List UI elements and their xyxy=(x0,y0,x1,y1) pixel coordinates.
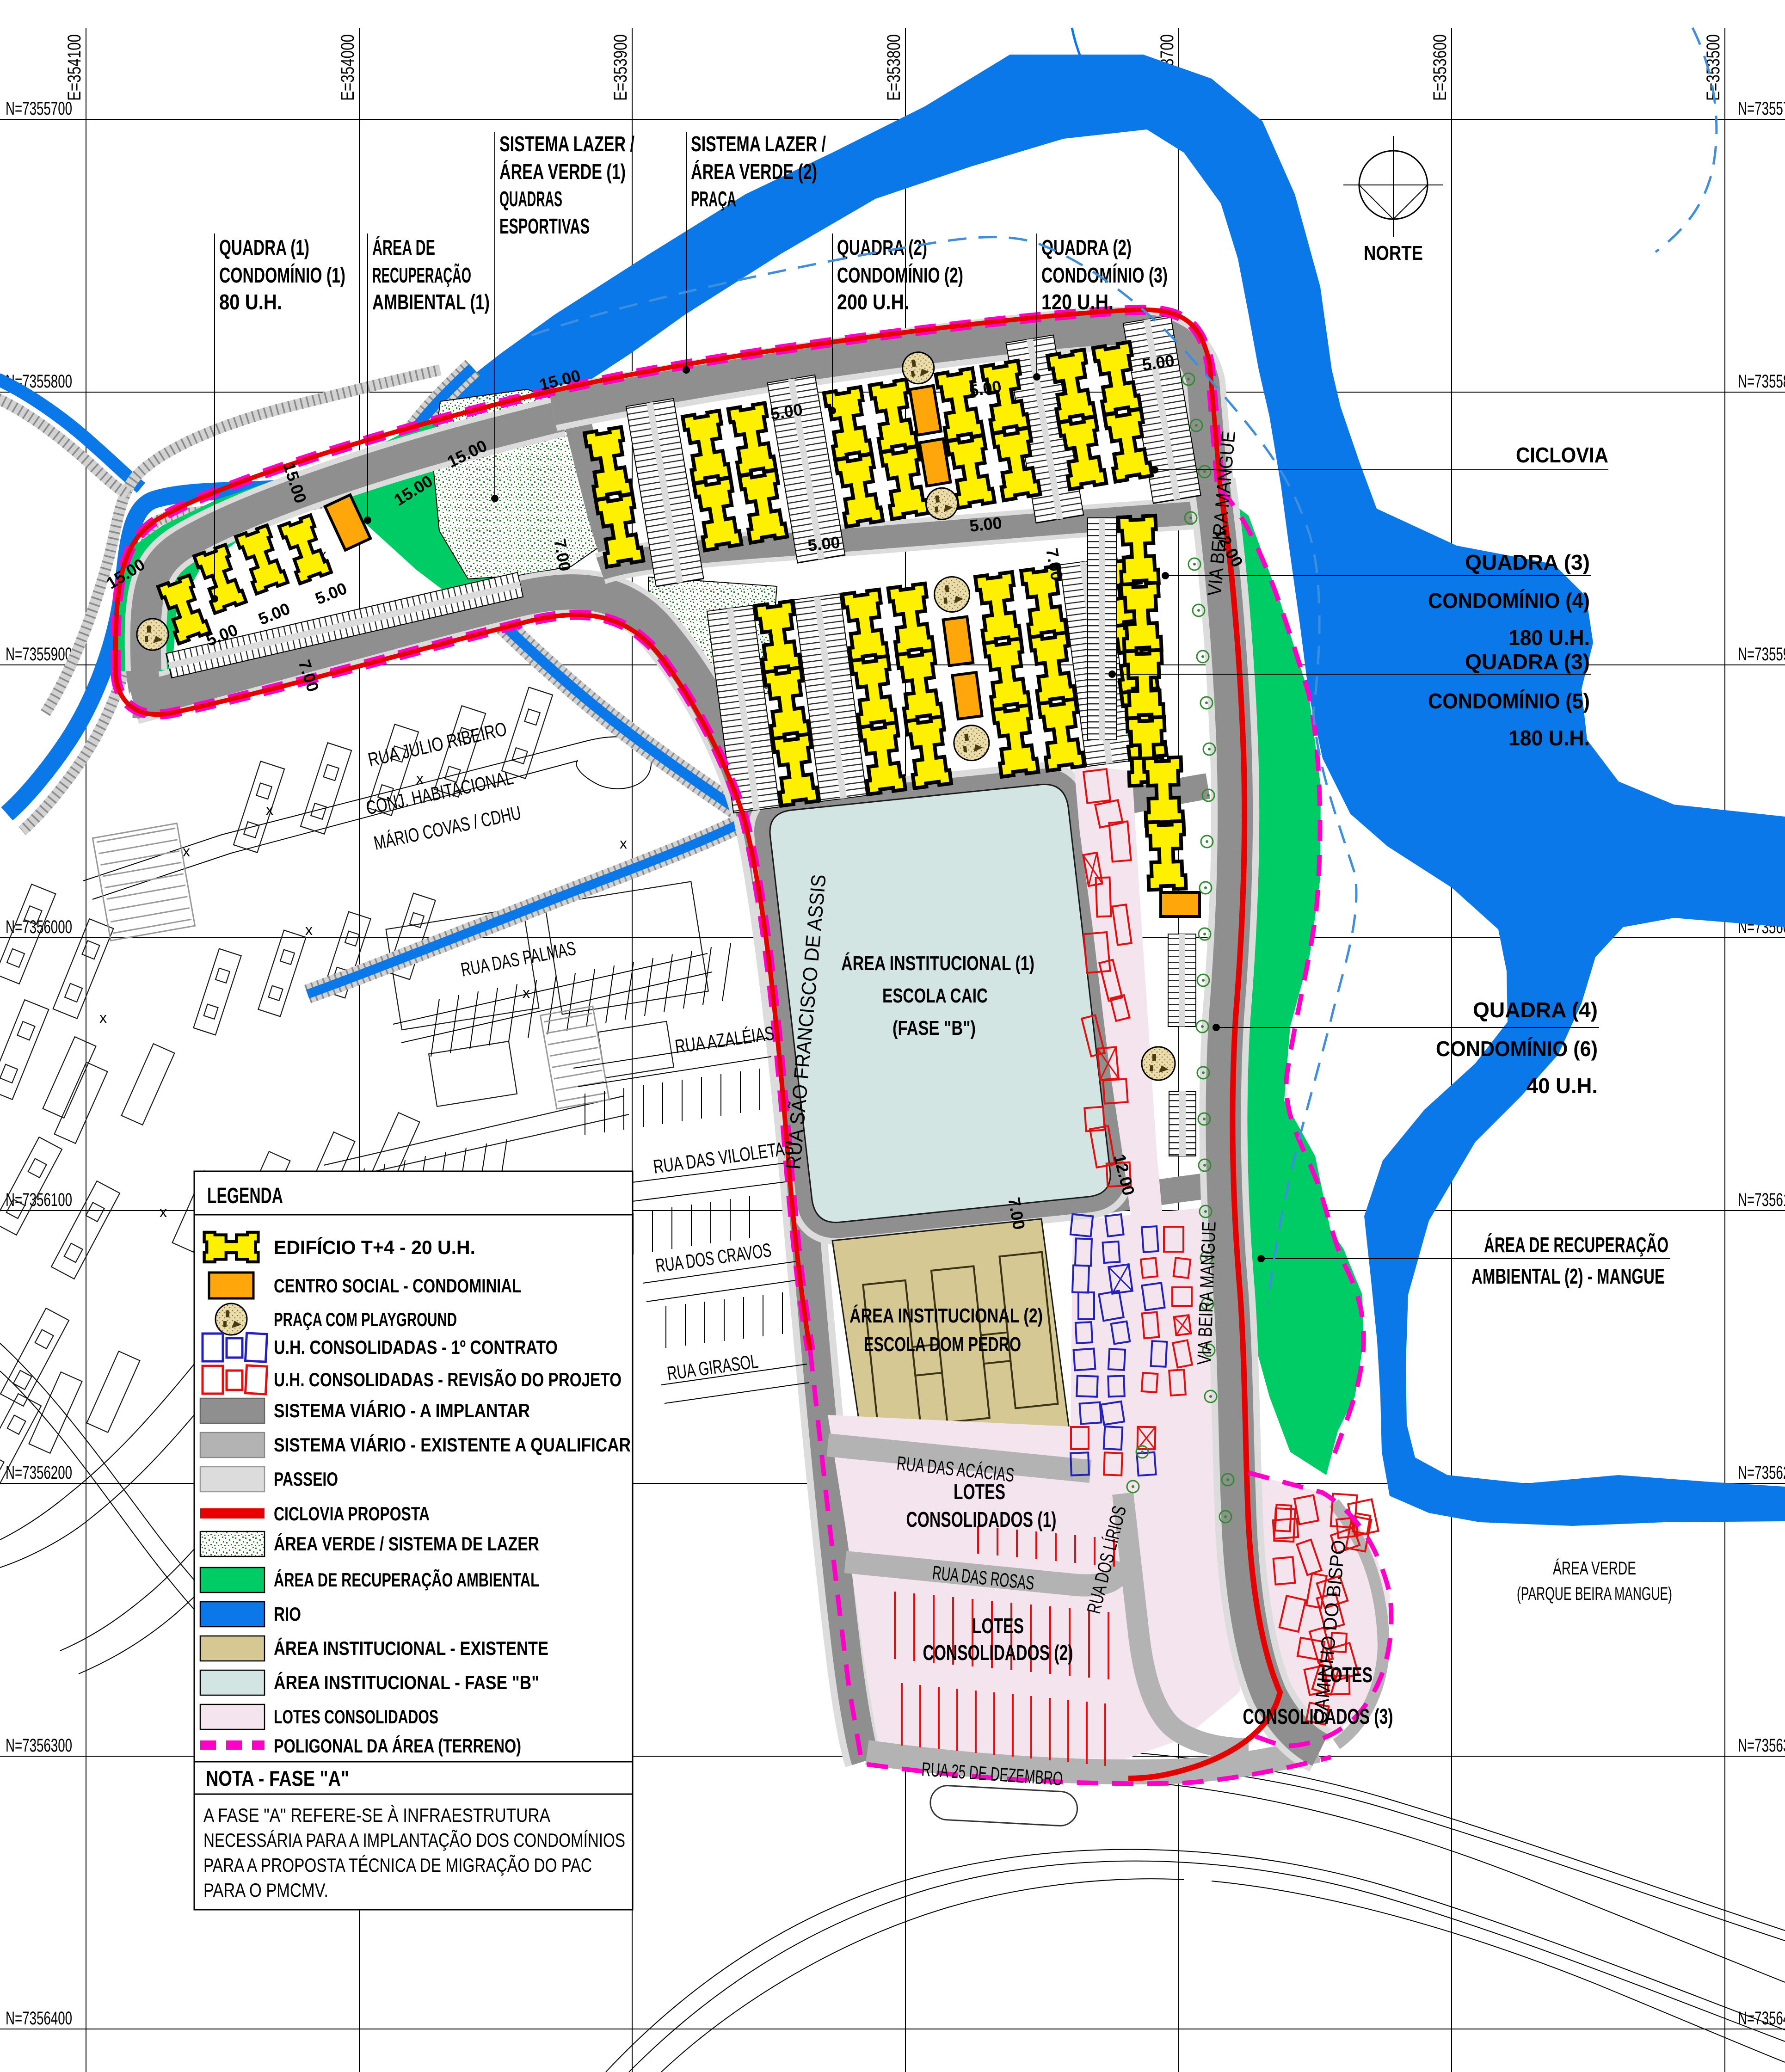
svg-text:N=7356200: N=7356200 xyxy=(6,1463,72,1483)
svg-text:QUADRAS: QUADRAS xyxy=(499,187,562,211)
svg-text:N=7356400: N=7356400 xyxy=(6,2008,72,2029)
svg-text:LEGENDA: LEGENDA xyxy=(207,1184,283,1208)
svg-text:(PARQUE BEIRA MANGUE): (PARQUE BEIRA MANGUE) xyxy=(1517,1584,1672,1604)
svg-text:5.00: 5.00 xyxy=(807,533,841,555)
svg-text:x: x xyxy=(160,1204,167,1220)
svg-text:NECESSÁRIA PARA A IMPLANTAÇÃO: NECESSÁRIA PARA A IMPLANTAÇÃO DOS CONDOM… xyxy=(203,1829,625,1851)
svg-text:ÁREA DE RECUPERAÇÃO AMBIENTAL: ÁREA DE RECUPERAÇÃO AMBIENTAL xyxy=(274,1569,539,1591)
svg-text:SISTEMA LAZER /: SISTEMA LAZER / xyxy=(499,132,634,156)
svg-text:NORTE: NORTE xyxy=(1364,242,1423,264)
svg-text:SISTEMA VIÁRIO - EXISTENTE A Q: SISTEMA VIÁRIO - EXISTENTE A QUALIFICAR xyxy=(274,1434,631,1456)
svg-text:AMBIENTAL (1): AMBIENTAL (1) xyxy=(372,290,490,314)
svg-text:LOTES CONSOLIDADOS: LOTES CONSOLIDADOS xyxy=(274,1706,438,1728)
svg-text:CONDOMÍNIO (4): CONDOMÍNIO (4) xyxy=(1428,589,1590,613)
svg-text:RECUPERAÇÃO: RECUPERAÇÃO xyxy=(372,263,471,287)
svg-text:ÁREA DE: ÁREA DE xyxy=(372,235,435,259)
svg-text:U.H. CONSOLIDADAS - 1º CONTRAT: U.H. CONSOLIDADAS - 1º CONTRATO xyxy=(274,1336,558,1358)
svg-text:U.H. CONSOLIDADAS - REVISÃO DO: U.H. CONSOLIDADAS - REVISÃO DO PROJETO xyxy=(274,1369,622,1390)
svg-text:x: x xyxy=(305,922,313,938)
svg-text:N=7355700: N=7355700 xyxy=(1738,98,1785,119)
svg-text:CENTRO SOCIAL - CONDOMINIAL: CENTRO SOCIAL - CONDOMINIAL xyxy=(274,1275,521,1297)
svg-text:PRAÇA COM PLAYGROUND: PRAÇA COM PLAYGROUND xyxy=(274,1309,457,1330)
svg-text:PARA O PMCMV.: PARA O PMCMV. xyxy=(203,1879,328,1901)
svg-text:QUADRA (3): QUADRA (3) xyxy=(1465,650,1590,674)
svg-text:QUADRA (3): QUADRA (3) xyxy=(1465,550,1590,574)
svg-text:POLIGONAL DA ÁREA (TERRENO): POLIGONAL DA ÁREA (TERRENO) xyxy=(274,1735,521,1757)
svg-text:ESCOLA CAIC: ESCOLA CAIC xyxy=(882,984,988,1007)
svg-text:ÁREA VERDE (1): ÁREA VERDE (1) xyxy=(499,160,626,184)
svg-text:ÁREA DE RECUPERAÇÃO: ÁREA DE RECUPERAÇÃO xyxy=(1484,1233,1668,1257)
svg-text:LOTES: LOTES xyxy=(972,1614,1024,1638)
svg-text:LOTES: LOTES xyxy=(1321,1663,1373,1687)
svg-text:N=7356300: N=7356300 xyxy=(1738,1735,1785,1756)
svg-text:5.00: 5.00 xyxy=(969,513,1003,535)
svg-text:QUADRA (1): QUADRA (1) xyxy=(219,235,309,259)
svg-text:x: x xyxy=(416,770,424,787)
svg-text:200 U.H.: 200 U.H. xyxy=(837,290,909,314)
svg-text:EDIFÍCIO T+4 - 20 U.H.: EDIFÍCIO T+4 - 20 U.H. xyxy=(274,1236,475,1258)
svg-text:E=353800: E=353800 xyxy=(884,34,904,101)
svg-text:N=7355900: N=7355900 xyxy=(6,644,72,664)
svg-text:PRAÇA: PRAÇA xyxy=(691,187,736,211)
svg-text:QUADRA (2): QUADRA (2) xyxy=(1041,235,1132,259)
svg-text:CONDOMÍNIO (6): CONDOMÍNIO (6) xyxy=(1436,1037,1598,1061)
svg-text:PASSEIO: PASSEIO xyxy=(274,1468,338,1490)
svg-text:ÁREA VERDE / SISTEMA DE LAZER: ÁREA VERDE / SISTEMA DE LAZER xyxy=(274,1533,539,1555)
svg-text:LOTES: LOTES xyxy=(954,1480,1005,1504)
svg-text:ESPORTIVAS: ESPORTIVAS xyxy=(499,214,590,238)
svg-text:CONSOLIDADOS (1): CONSOLIDADOS (1) xyxy=(906,1507,1057,1531)
svg-text:RIO: RIO xyxy=(274,1603,301,1625)
svg-text:x: x xyxy=(620,835,627,852)
svg-text:N=7355900: N=7355900 xyxy=(1738,644,1785,664)
svg-text:CONSOLIDADOS (2): CONSOLIDADOS (2) xyxy=(923,1641,1073,1665)
svg-text:40 U.H.: 40 U.H. xyxy=(1526,1074,1598,1098)
svg-text:N=7356100: N=7356100 xyxy=(1738,1190,1785,1210)
svg-text:QUADRA (2): QUADRA (2) xyxy=(837,235,927,259)
svg-text:CONDOMÍNIO (5): CONDOMÍNIO (5) xyxy=(1428,689,1590,713)
svg-text:ÁREA VERDE (2): ÁREA VERDE (2) xyxy=(691,160,817,184)
svg-text:CONDOMÍNIO (3): CONDOMÍNIO (3) xyxy=(1041,263,1168,287)
svg-text:E=354000: E=354000 xyxy=(338,34,358,101)
svg-text:ÁREA VERDE: ÁREA VERDE xyxy=(1553,1558,1636,1579)
svg-text:x: x xyxy=(523,984,530,1001)
svg-text:SISTEMA VIÁRIO - A IMPLANTAR: SISTEMA VIÁRIO - A IMPLANTAR xyxy=(274,1400,530,1421)
svg-text:PARA A PROPOSTA TÉCNICA DE MIG: PARA A PROPOSTA TÉCNICA DE MIGRAÇÃO DO P… xyxy=(203,1854,592,1876)
svg-text:N=7356200: N=7356200 xyxy=(1738,1463,1785,1483)
svg-text:180 U.H.: 180 U.H. xyxy=(1508,726,1590,750)
svg-text:80 U.H.: 80 U.H. xyxy=(219,290,282,314)
svg-text:(FASE "B"): (FASE "B") xyxy=(892,1017,976,1039)
svg-text:NOTA - FASE "A": NOTA - FASE "A" xyxy=(206,1766,349,1790)
svg-text:ÁREA INSTITUCIONAL (1): ÁREA INSTITUCIONAL (1) xyxy=(841,952,1034,975)
svg-text:N=7356300: N=7356300 xyxy=(6,1735,72,1756)
svg-text:QUADRA (4): QUADRA (4) xyxy=(1473,998,1598,1022)
svg-text:CONDOMÍNIO (1): CONDOMÍNIO (1) xyxy=(219,263,345,287)
svg-text:x: x xyxy=(99,1009,107,1026)
svg-text:CICLOVIA PROPOSTA: CICLOVIA PROPOSTA xyxy=(274,1503,430,1525)
svg-text:E=354100: E=354100 xyxy=(64,34,85,101)
svg-text:ÁREA INSTITUCIONAL - FASE "B": ÁREA INSTITUCIONAL - FASE "B" xyxy=(274,1672,539,1693)
svg-text:CONSOLIDADOS (3): CONSOLIDADOS (3) xyxy=(1243,1704,1393,1728)
svg-text:SISTEMA LAZER /: SISTEMA LAZER / xyxy=(691,132,826,156)
svg-text:AMBIENTAL (2) - MANGUE: AMBIENTAL (2) - MANGUE xyxy=(1471,1264,1665,1288)
svg-text:E=353600: E=353600 xyxy=(1430,34,1450,101)
svg-text:N=7356400: N=7356400 xyxy=(1738,2008,1785,2029)
svg-text:ÁREA INSTITUCIONAL (2): ÁREA INSTITUCIONAL (2) xyxy=(849,1304,1043,1327)
svg-text:ÁREA INSTITUCIONAL - EXISTENTE: ÁREA INSTITUCIONAL - EXISTENTE xyxy=(274,1637,548,1659)
svg-text:x: x xyxy=(266,801,273,818)
svg-text:120 U.H.: 120 U.H. xyxy=(1041,290,1114,314)
svg-text:N=7355800: N=7355800 xyxy=(1738,371,1785,392)
svg-text:ESCOLA DOM PEDRO: ESCOLA DOM PEDRO xyxy=(864,1333,1021,1356)
svg-text:180 U.H.: 180 U.H. xyxy=(1508,626,1590,650)
svg-text:E=353900: E=353900 xyxy=(610,34,631,101)
svg-text:CICLOVIA: CICLOVIA xyxy=(1516,443,1608,467)
svg-text:CONDOMÍNIO (2): CONDOMÍNIO (2) xyxy=(837,263,963,287)
svg-text:x: x xyxy=(183,843,190,860)
svg-text:N=7355700: N=7355700 xyxy=(6,98,72,119)
svg-text:A FASE "A" REFERE-SE À INFRAE: A FASE "A" REFERE-SE À INFRAESTRUTURA xyxy=(203,1804,550,1826)
